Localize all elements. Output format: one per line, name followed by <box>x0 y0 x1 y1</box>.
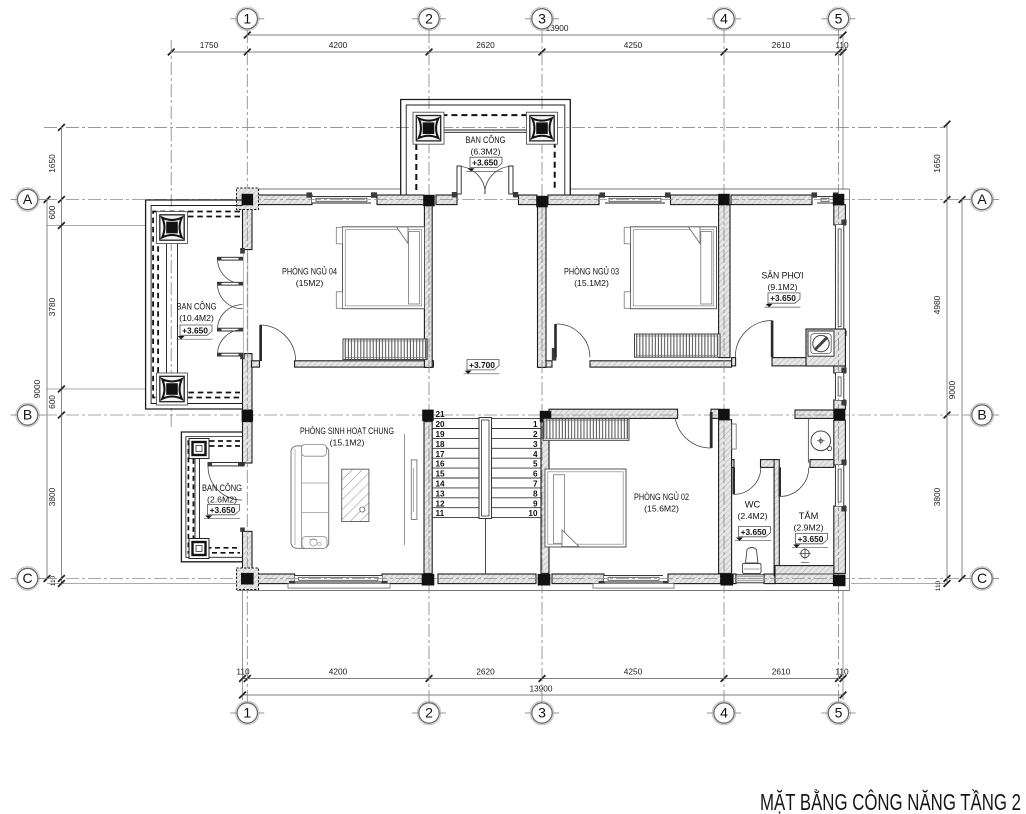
svg-text:13: 13 <box>436 489 446 498</box>
svg-text:(6.3M2): (6.3M2) <box>471 147 501 157</box>
svg-text:2620: 2620 <box>476 667 495 677</box>
svg-text:1650: 1650 <box>47 154 57 173</box>
svg-text:3: 3 <box>538 705 546 721</box>
svg-text:(15.1M2): (15.1M2) <box>574 278 609 288</box>
svg-text:21: 21 <box>436 410 446 419</box>
svg-text:600: 600 <box>47 205 57 219</box>
svg-text:PHÒNG NGỦ 02: PHÒNG NGỦ 02 <box>634 491 689 502</box>
svg-text:WC: WC <box>745 500 761 510</box>
svg-text:110: 110 <box>835 667 849 677</box>
svg-text:14: 14 <box>436 480 446 489</box>
svg-text:3800: 3800 <box>47 487 57 506</box>
svg-text:PHÒNG SINH HOẠT CHUNG: PHÒNG SINH HOẠT CHUNG <box>300 426 394 436</box>
svg-text:9000: 9000 <box>947 380 957 399</box>
svg-text:1: 1 <box>243 705 251 721</box>
svg-text:9: 9 <box>533 499 538 508</box>
svg-text:(2.9M2): (2.9M2) <box>794 523 824 533</box>
svg-text:TẮM: TẮM <box>799 511 819 521</box>
svg-text:BAN CÔNG: BAN CÔNG <box>466 135 506 145</box>
svg-text:+3.650: +3.650 <box>770 293 796 303</box>
svg-text:2610: 2610 <box>772 667 791 677</box>
svg-text:(2.6M2): (2.6M2) <box>207 495 237 505</box>
svg-text:4200: 4200 <box>329 667 348 677</box>
svg-text:17: 17 <box>436 450 446 459</box>
svg-text:600: 600 <box>47 395 57 409</box>
svg-text:(10.4M2): (10.4M2) <box>179 313 214 323</box>
svg-text:5: 5 <box>835 10 843 26</box>
svg-text:B: B <box>977 407 986 423</box>
svg-text:(15.1M2): (15.1M2) <box>330 438 365 448</box>
svg-text:9000: 9000 <box>32 379 42 398</box>
svg-text:4: 4 <box>533 450 538 459</box>
svg-text:+3.650: +3.650 <box>182 325 208 335</box>
svg-text:+3.700: +3.700 <box>469 360 495 370</box>
svg-text:1650: 1650 <box>932 154 942 173</box>
svg-text:20: 20 <box>436 420 446 429</box>
svg-text:5: 5 <box>835 705 843 721</box>
svg-text:4980: 4980 <box>932 295 942 314</box>
svg-text:4250: 4250 <box>624 40 643 50</box>
svg-text:A: A <box>977 191 987 207</box>
svg-text:5: 5 <box>533 460 538 469</box>
svg-text:+3.650: +3.650 <box>741 527 767 537</box>
svg-text:16: 16 <box>436 460 446 469</box>
svg-text:12: 12 <box>436 499 446 508</box>
svg-text:(15.6M2): (15.6M2) <box>644 504 679 514</box>
svg-text:15: 15 <box>436 470 446 479</box>
svg-text:6: 6 <box>533 470 538 479</box>
svg-text:C: C <box>23 570 33 586</box>
svg-text:3: 3 <box>538 10 546 26</box>
svg-text:1750: 1750 <box>200 40 219 50</box>
svg-text:2: 2 <box>425 10 433 26</box>
svg-text:7: 7 <box>533 480 538 489</box>
svg-text:2620: 2620 <box>476 40 495 50</box>
svg-text:A: A <box>23 191 33 207</box>
svg-text:11: 11 <box>436 509 445 518</box>
svg-text:C: C <box>977 570 987 586</box>
svg-text:8: 8 <box>533 489 538 498</box>
svg-text:+3.650: +3.650 <box>210 505 236 515</box>
svg-text:110: 110 <box>50 575 57 586</box>
svg-text:(9.1M2): (9.1M2) <box>768 282 798 292</box>
svg-text:4: 4 <box>720 10 728 26</box>
svg-text:+3.650: +3.650 <box>472 158 498 168</box>
svg-text:1: 1 <box>243 10 251 26</box>
svg-text:2: 2 <box>425 705 433 721</box>
svg-text:3780: 3780 <box>47 297 57 316</box>
svg-text:3800: 3800 <box>932 487 942 506</box>
svg-text:(15M2): (15M2) <box>296 278 324 288</box>
svg-text:(2.4M2): (2.4M2) <box>738 511 768 521</box>
svg-text:4250: 4250 <box>624 667 643 677</box>
svg-text:MẶT BẰNG CÔNG NĂNG TẦNG 2: MẶT BẰNG CÔNG NĂNG TẦNG 2 <box>760 788 1021 814</box>
svg-text:+3.650: +3.650 <box>798 534 824 544</box>
svg-text:BAN CÔNG: BAN CÔNG <box>202 483 242 493</box>
svg-text:BAN CÔNG: BAN CÔNG <box>177 302 217 312</box>
svg-text:2610: 2610 <box>772 40 791 50</box>
svg-text:110: 110 <box>835 40 849 50</box>
svg-text:19: 19 <box>436 430 446 439</box>
svg-text:4200: 4200 <box>329 40 348 50</box>
svg-text:3: 3 <box>533 440 538 449</box>
svg-text:110: 110 <box>935 580 942 591</box>
svg-text:B: B <box>23 407 32 423</box>
svg-text:SÂN PHƠI: SÂN PHƠI <box>762 271 804 281</box>
svg-text:PHÒNG NGỦ 03: PHÒNG NGỦ 03 <box>564 266 619 277</box>
svg-text:4: 4 <box>720 705 728 721</box>
svg-text:110: 110 <box>236 667 250 677</box>
svg-text:2: 2 <box>533 430 538 439</box>
svg-text:1: 1 <box>533 420 538 429</box>
svg-text:13900: 13900 <box>529 684 552 694</box>
svg-text:18: 18 <box>436 440 446 449</box>
svg-text:10: 10 <box>528 509 538 518</box>
svg-text:PHÒNG NGỦ 04: PHÒNG NGỦ 04 <box>282 266 337 277</box>
